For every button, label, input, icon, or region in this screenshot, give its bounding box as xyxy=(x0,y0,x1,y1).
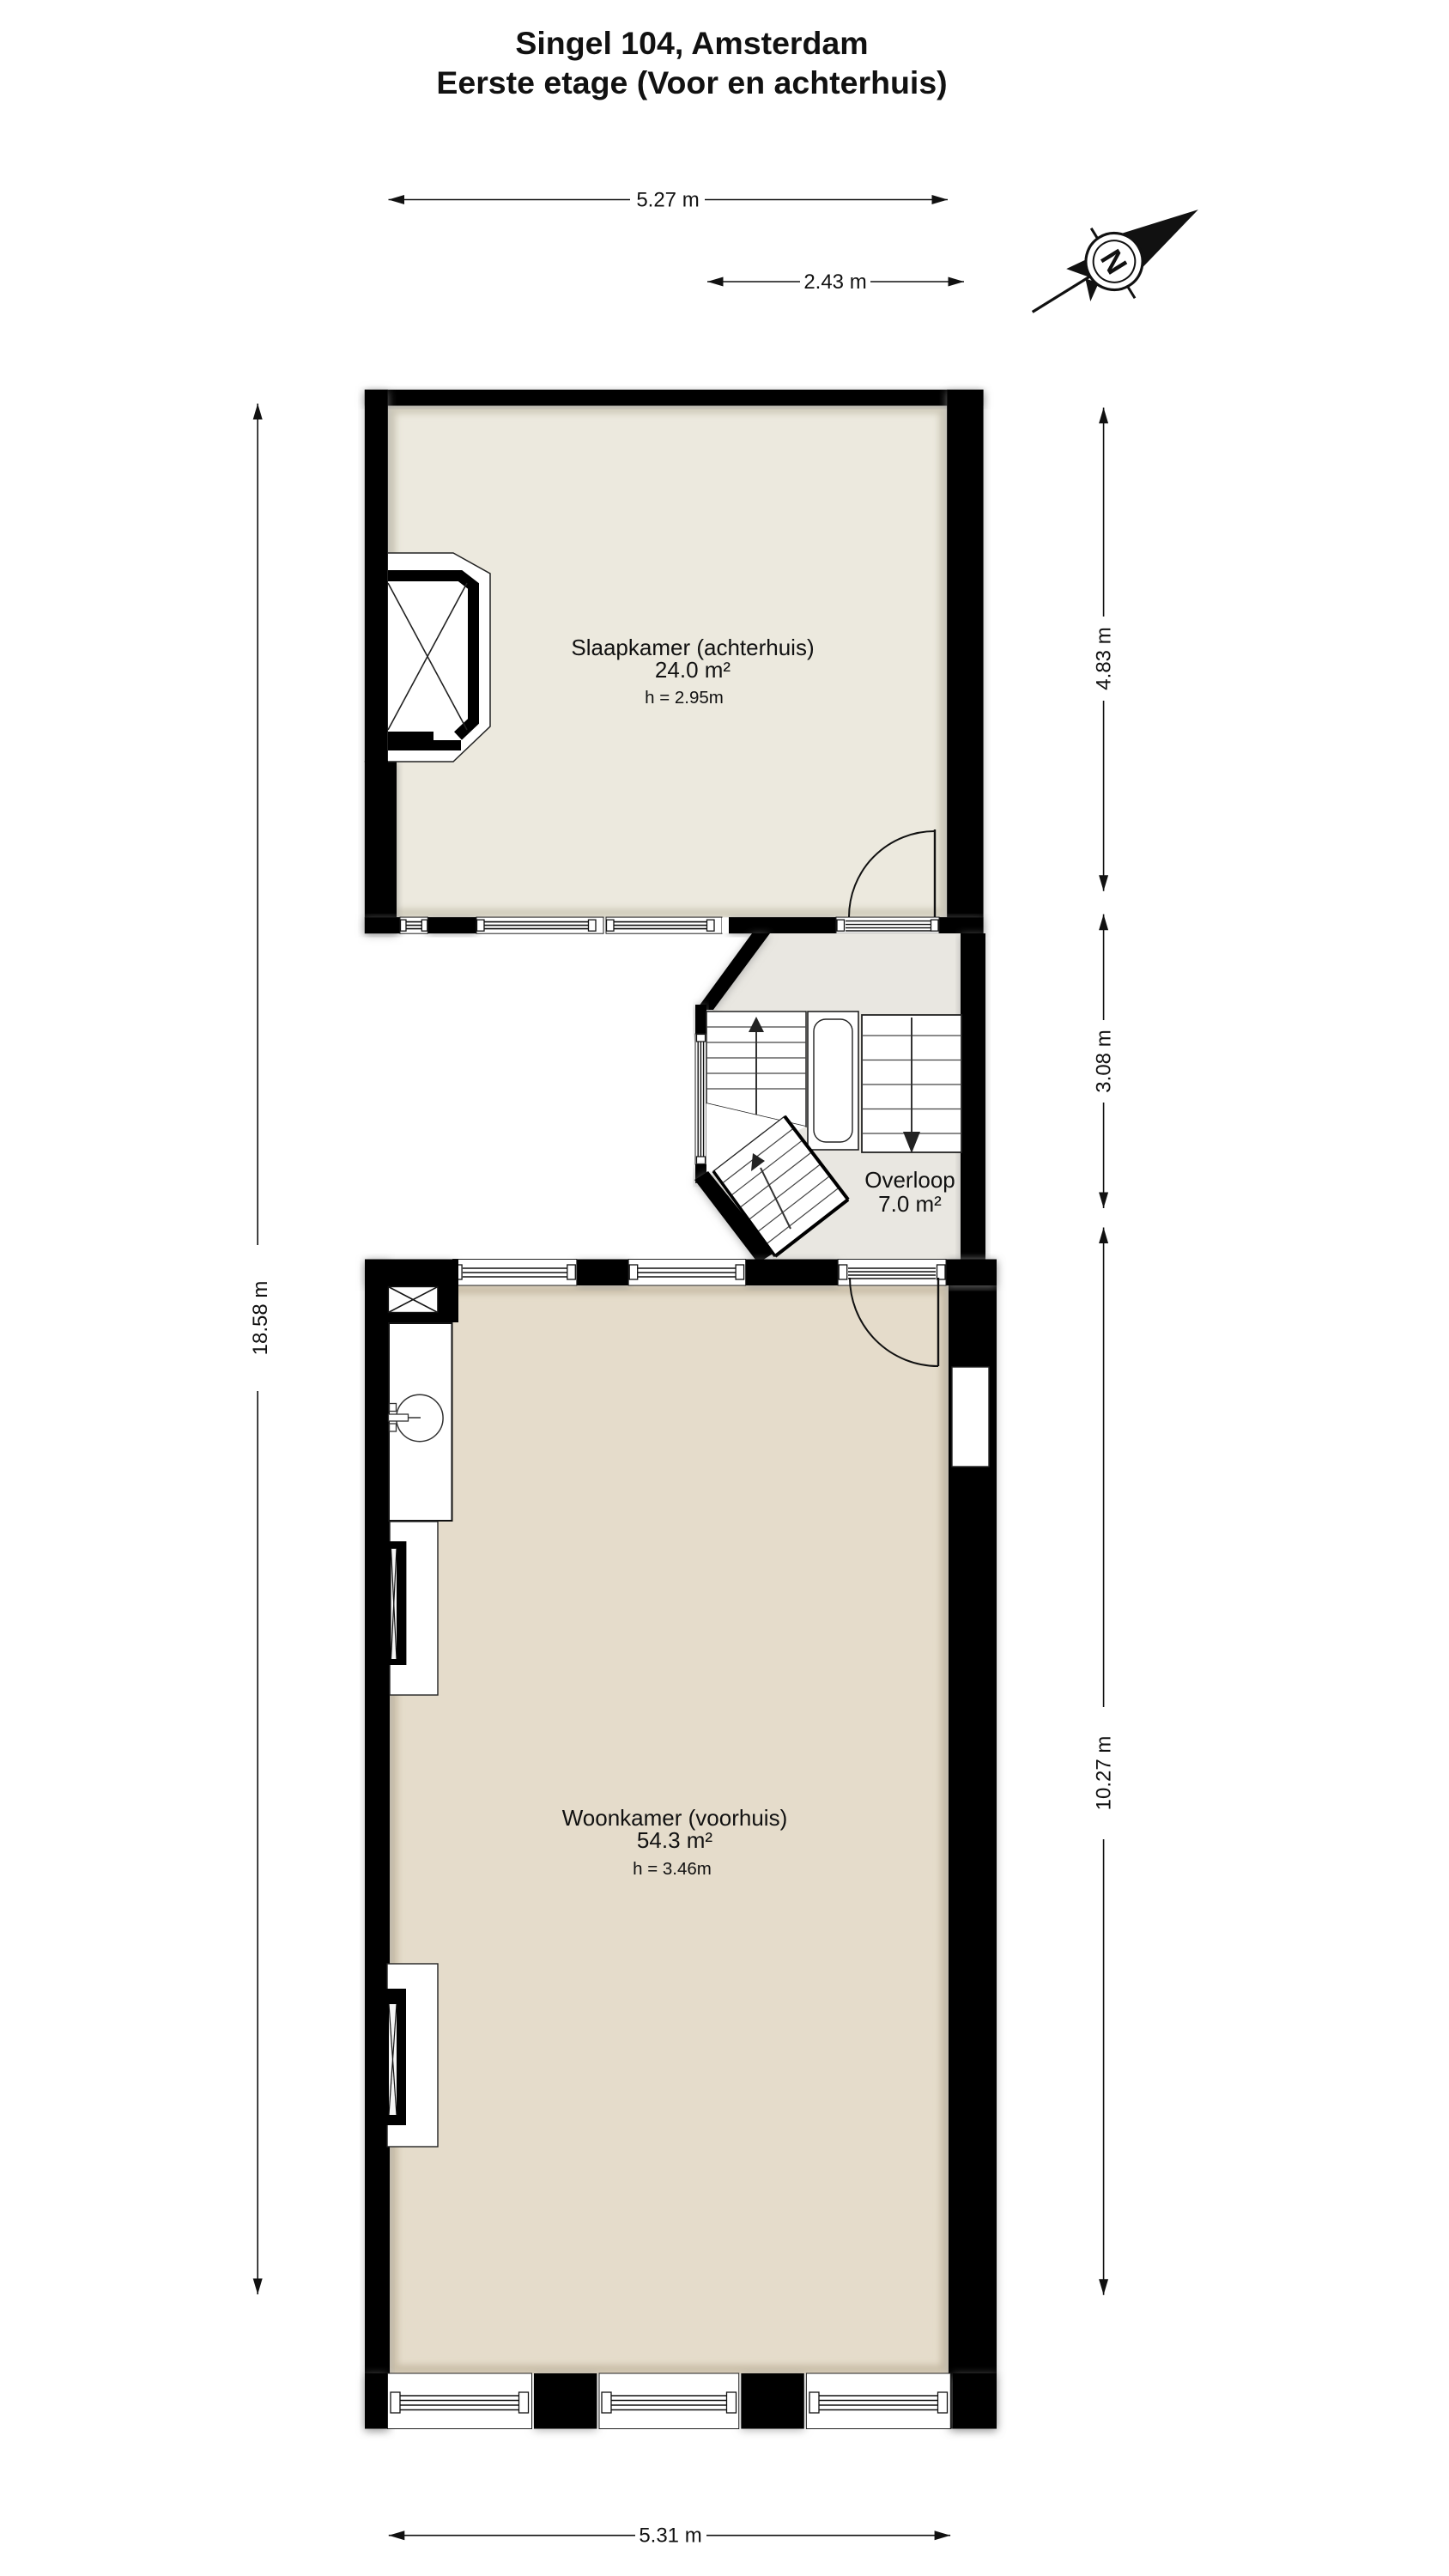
svg-text:h = 2.95m: h = 2.95m xyxy=(645,688,724,708)
svg-text:5.31 m: 5.31 m xyxy=(639,2524,701,2548)
svg-text:2.43 m: 2.43 m xyxy=(803,270,866,294)
svg-text:18.58 m: 18.58 m xyxy=(249,1281,272,1356)
svg-text:4.83 m: 4.83 m xyxy=(1093,627,1116,690)
svg-text:h = 3.46m: h = 3.46m xyxy=(633,1859,712,1879)
svg-text:Eerste etage (Voor en achterhu: Eerste etage (Voor en achterhuis) xyxy=(436,64,947,100)
svg-text:5.27 m: 5.27 m xyxy=(636,189,699,212)
svg-text:24.0 m²: 24.0 m² xyxy=(655,657,731,683)
svg-text:3.08 m: 3.08 m xyxy=(1093,1030,1116,1092)
svg-text:Overloop: Overloop xyxy=(864,1167,955,1193)
svg-text:10.27 m: 10.27 m xyxy=(1093,1736,1116,1811)
svg-text:54.3 m²: 54.3 m² xyxy=(637,1827,712,1853)
svg-text:Singel 104, Amsterdam: Singel 104, Amsterdam xyxy=(515,25,868,61)
svg-text:7.0 m²: 7.0 m² xyxy=(878,1191,942,1217)
